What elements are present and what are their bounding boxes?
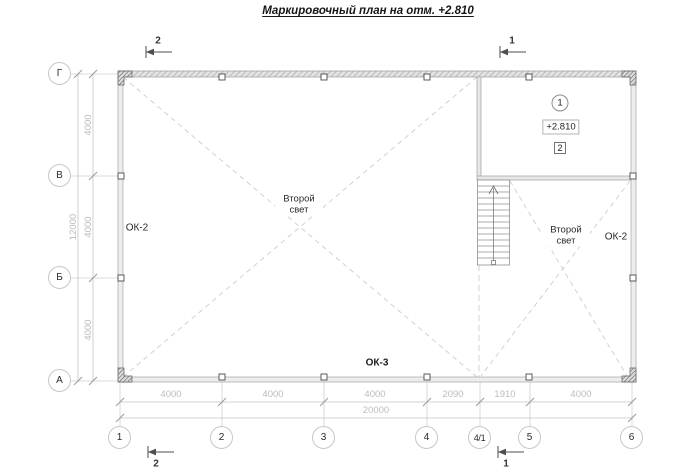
staircase [478, 180, 510, 265]
axis-bubble-2: 2 [210, 426, 233, 449]
second-light-label-right: Второй свет [542, 226, 590, 247]
wall-right [631, 77, 636, 377]
window-label-ok2-left: ОК-2 [125, 223, 150, 234]
axis-label: В [56, 170, 63, 181]
dim-left-total: 12000 [68, 207, 80, 247]
axis-label: А [56, 375, 63, 386]
dim-bottom-total: 20000 [363, 405, 389, 416]
dim-bottom-segment-1: 4000 [160, 389, 181, 400]
section-1-label-top: 1 [509, 36, 515, 47]
section-marks [146, 46, 526, 458]
dim-bottom-segment-6: 4000 [570, 389, 591, 400]
axis-label: Б [56, 272, 63, 283]
axis-label: 2 [219, 432, 225, 443]
wall-bottom [118, 377, 636, 382]
wall-left [118, 77, 123, 377]
axis-label: 5 [527, 432, 533, 443]
axis-bubble-4-1: 4/1 [468, 426, 491, 449]
marking-plan-drawing: Маркировочный план на отм. +2.810 Г В Б … [0, 0, 700, 474]
dim-left-segment-1: 4000 [83, 105, 95, 145]
axis-label: 4/1 [474, 433, 486, 443]
room-wall-left [477, 77, 481, 176]
room-number-tag: 1 [552, 95, 569, 112]
dim-left-segment-2: 4000 [83, 207, 95, 247]
dim-bottom-segment-4: 2090 [442, 389, 463, 400]
note-number-tag: 2 [554, 142, 566, 154]
section-2-label-bottom: 2 [153, 459, 159, 470]
dim-bottom-segment-2: 4000 [262, 389, 283, 400]
elevation-mark: +2.810 [542, 120, 579, 135]
window-label-ok2-right: ОК-2 [604, 232, 629, 243]
axis-bubble-a: А [48, 369, 71, 392]
axis-label: 6 [629, 432, 635, 443]
axis-bubble-6: 6 [620, 426, 643, 449]
axis-bubble-5: 5 [518, 426, 541, 449]
axis-bubble-g: Г [48, 62, 71, 85]
axis-bubble-b: Б [48, 266, 71, 289]
plan-linework [0, 0, 700, 474]
drawing-title: Маркировочный план на отм. +2.810 [0, 5, 700, 17]
window-label-ok3-bottom: ОК-3 [365, 358, 390, 369]
dim-left-segment-3: 4000 [83, 310, 95, 350]
section-1-label-bottom: 1 [503, 459, 509, 470]
axis-label: Г [57, 68, 62, 79]
axis-bubble-4: 4 [415, 426, 438, 449]
axis-bubble-1: 1 [108, 426, 131, 449]
axis-bubble-v: В [48, 164, 71, 187]
wall-top [118, 71, 636, 77]
axis-label: 4 [424, 432, 430, 443]
axis-bubble-3: 3 [312, 426, 335, 449]
dim-bottom-segment-3: 4000 [364, 389, 385, 400]
axis-label: 3 [321, 432, 327, 443]
second-light-label-left: Второй свет [275, 195, 323, 216]
room-wall-bottom [477, 176, 631, 180]
section-2-label-top: 2 [155, 36, 161, 47]
axis-label: 1 [117, 432, 123, 443]
dim-bottom-segment-5: 1910 [494, 389, 515, 400]
